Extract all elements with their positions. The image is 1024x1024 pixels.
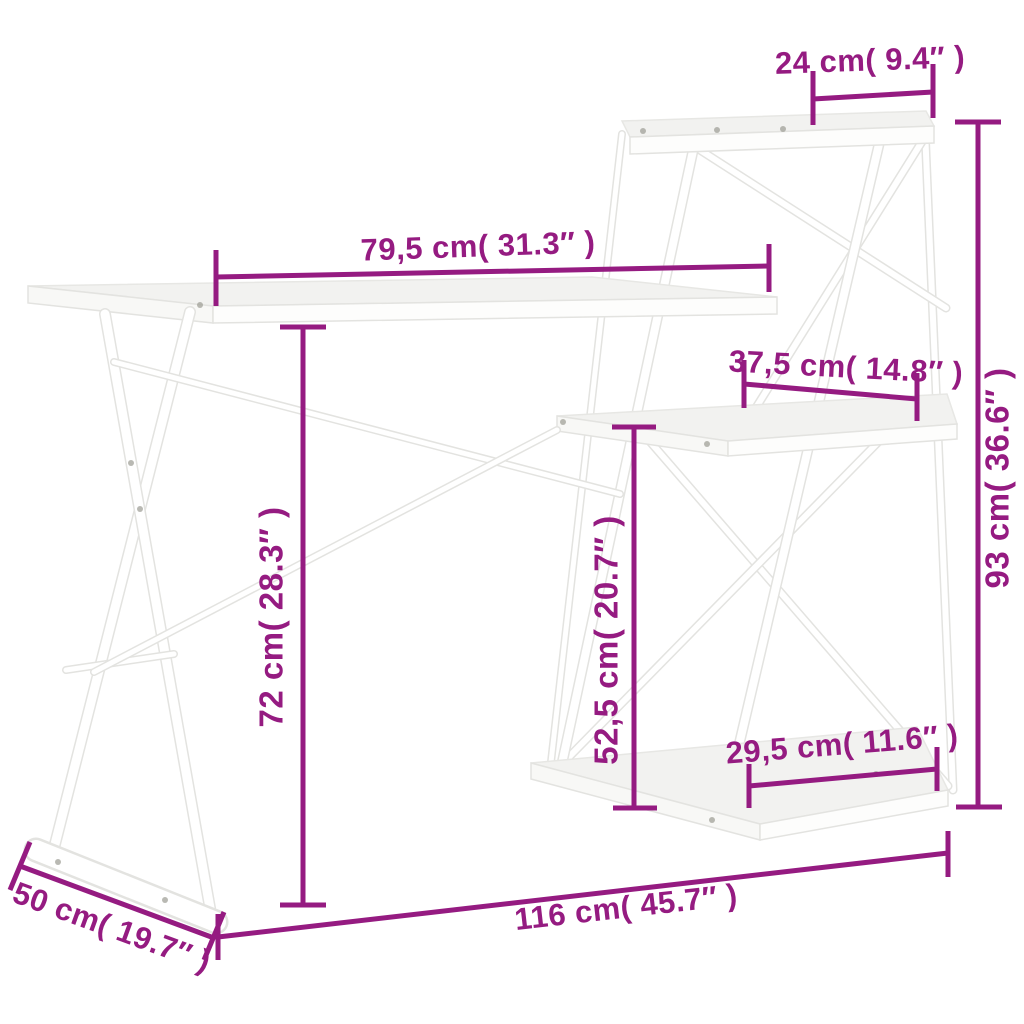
product-dimension-diagram: 24 cm( 9.4″ ) 79,5 cm( 31.3″ ) 37,5 cm( … [0, 0, 1024, 1024]
desk-legs [36, 312, 216, 922]
screw-dot [560, 419, 566, 425]
screw-dot [55, 859, 61, 865]
screw-dot [714, 127, 720, 133]
diagram-canvas: 24 cm( 9.4″ ) 79,5 cm( 31.3″ ) 37,5 cm( … [0, 0, 1024, 1024]
cross-brace-down [114, 362, 620, 494]
screw-dot [640, 128, 646, 134]
shelf-leg-front-right [722, 140, 880, 818]
screw-dot [704, 441, 710, 447]
screw-dot [137, 506, 143, 512]
dim-label-79-5cm: 79,5 cm( 31.3″ ) [360, 224, 596, 267]
dim-label-52-5cm: 52,5 cm( 20.7″ ) [588, 515, 625, 764]
dimension-total-height: 93 cm( 36.6″ ) [955, 122, 1016, 807]
screw-dot [709, 817, 715, 823]
dimension-total-width: 116 cm( 45.7″ ) [218, 831, 948, 960]
shelf-leg-back-right [925, 130, 953, 790]
dim-label-72cm: 72 cm( 28.3″ ) [253, 507, 290, 728]
cross-braces [94, 362, 620, 672]
screw-dot [780, 126, 786, 132]
shelf-brace-upper-a [700, 150, 946, 308]
dim-label-93cm: 93 cm( 36.6″ ) [979, 368, 1016, 589]
dim-label-24cm: 24 cm( 9.4″ ) [774, 39, 965, 81]
screw-dot [162, 897, 168, 903]
shelf-top-board [622, 111, 934, 154]
screw-dot [128, 460, 134, 466]
dim-label-116cm: 116 cm( 45.7″ ) [513, 877, 740, 937]
cross-brace-up [94, 430, 557, 672]
desk-leg-front [105, 314, 210, 908]
screw-dot [197, 302, 203, 308]
